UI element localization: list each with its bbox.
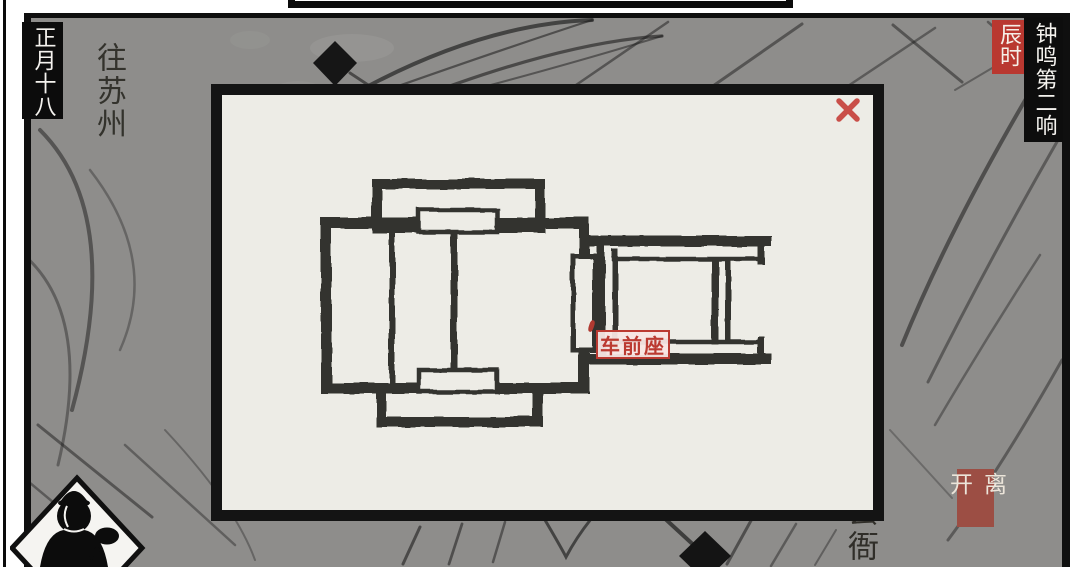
- leave-button[interactable]: 离开: [957, 469, 994, 527]
- hour-text: 辰时: [992, 23, 1024, 67]
- hour-badge: 辰时: [992, 20, 1024, 74]
- bell-badge: 钟鸣第二响: [1024, 17, 1063, 142]
- hotspot-label-front-seat[interactable]: 车前座: [596, 330, 670, 359]
- bell-text: 钟鸣第二响: [1028, 22, 1060, 137]
- popup-cart-inspect: 车前座: [211, 84, 884, 521]
- thinker-avatar[interactable]: [10, 474, 175, 567]
- close-icon[interactable]: [835, 97, 861, 123]
- date-badge: 正月十八: [22, 22, 63, 119]
- leave-text: 离开: [942, 472, 1010, 527]
- outer-frame-line: [3, 0, 6, 567]
- top-window-fragment: [288, 0, 793, 8]
- date-text: 正月十八: [27, 26, 59, 118]
- destination-label: 往苏州: [94, 42, 130, 162]
- cart-top-view-illustration: [222, 95, 873, 510]
- game-screen: 正月十八 往苏州 辰时 钟鸣第二响 离开 去县衙: [0, 0, 1080, 567]
